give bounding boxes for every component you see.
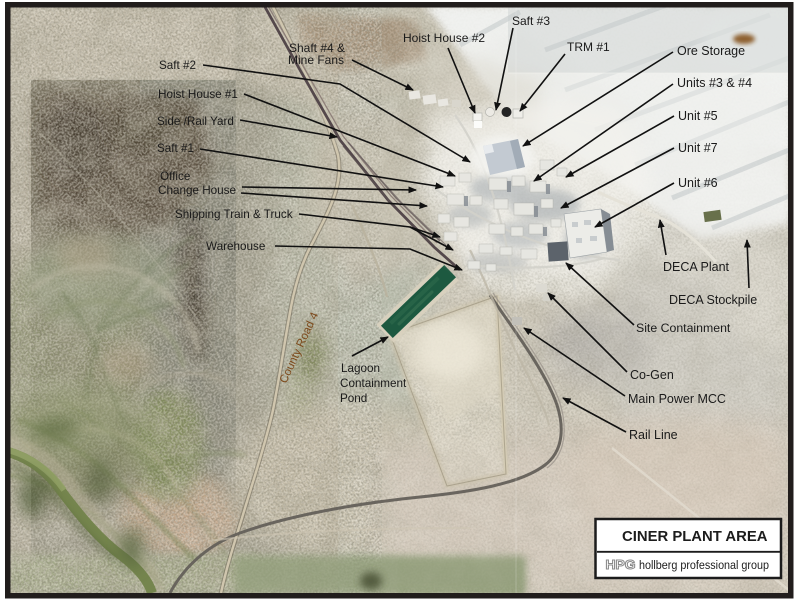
svg-text:DECA Plant: DECA Plant bbox=[663, 260, 730, 274]
svg-text:Side /Rail Yard: Side /Rail Yard bbox=[157, 115, 234, 128]
svg-text:Main Power MCC: Main Power MCC bbox=[628, 392, 726, 406]
svg-text:Hoist House #2: Hoist House #2 bbox=[403, 31, 485, 45]
svg-text:Office: Office bbox=[160, 170, 190, 183]
svg-text:Shipping Train & Truck: Shipping Train & Truck bbox=[175, 208, 293, 221]
svg-text:Mine Fans: Mine Fans bbox=[288, 53, 344, 67]
svg-text:Rail Line: Rail Line bbox=[629, 428, 678, 442]
svg-text:Site Containment: Site Containment bbox=[636, 321, 731, 335]
svg-text:DECA Stockpile: DECA Stockpile bbox=[669, 293, 757, 307]
svg-text:Co-Gen: Co-Gen bbox=[630, 368, 674, 382]
svg-text:Saft #2: Saft #2 bbox=[159, 59, 196, 72]
svg-text:Unit #7: Unit #7 bbox=[678, 141, 718, 155]
svg-text:Hoist House #1: Hoist House #1 bbox=[158, 88, 238, 101]
svg-text:CINER PLANT AREA: CINER PLANT AREA bbox=[622, 529, 768, 545]
svg-text:Unit #6: Unit #6 bbox=[678, 176, 718, 190]
svg-text:HPG: HPG bbox=[606, 557, 636, 572]
svg-text:Lagoon: Lagoon bbox=[341, 362, 380, 375]
svg-text:Saft #1: Saft #1 bbox=[157, 142, 194, 155]
svg-text:hollberg professional group: hollberg professional group bbox=[639, 558, 769, 572]
svg-text:TRM #1: TRM #1 bbox=[567, 40, 610, 54]
svg-text:Pond: Pond bbox=[340, 392, 367, 405]
svg-text:Warehouse: Warehouse bbox=[206, 240, 265, 253]
svg-text:Containment: Containment bbox=[340, 377, 407, 390]
svg-text:Unit #5: Unit #5 bbox=[678, 109, 718, 123]
svg-text:Units #3 & #4: Units #3 & #4 bbox=[677, 76, 752, 90]
svg-text:Ore Storage: Ore Storage bbox=[677, 44, 745, 58]
svg-text:Change House: Change House bbox=[158, 184, 236, 197]
svg-text:Saft #3: Saft #3 bbox=[512, 14, 550, 28]
